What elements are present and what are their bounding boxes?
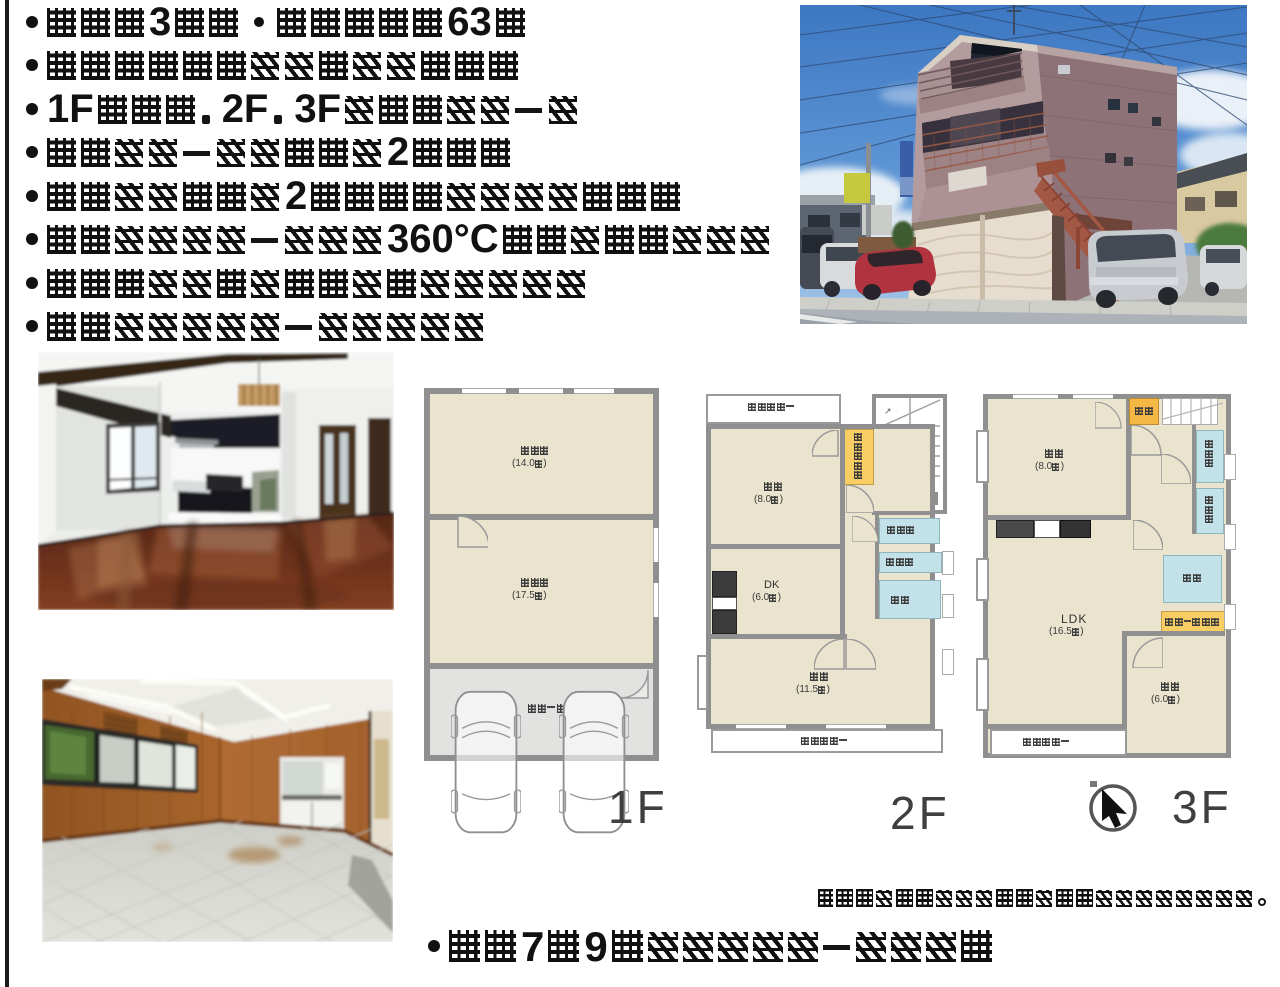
svg-text:↗: ↗ — [884, 406, 892, 416]
